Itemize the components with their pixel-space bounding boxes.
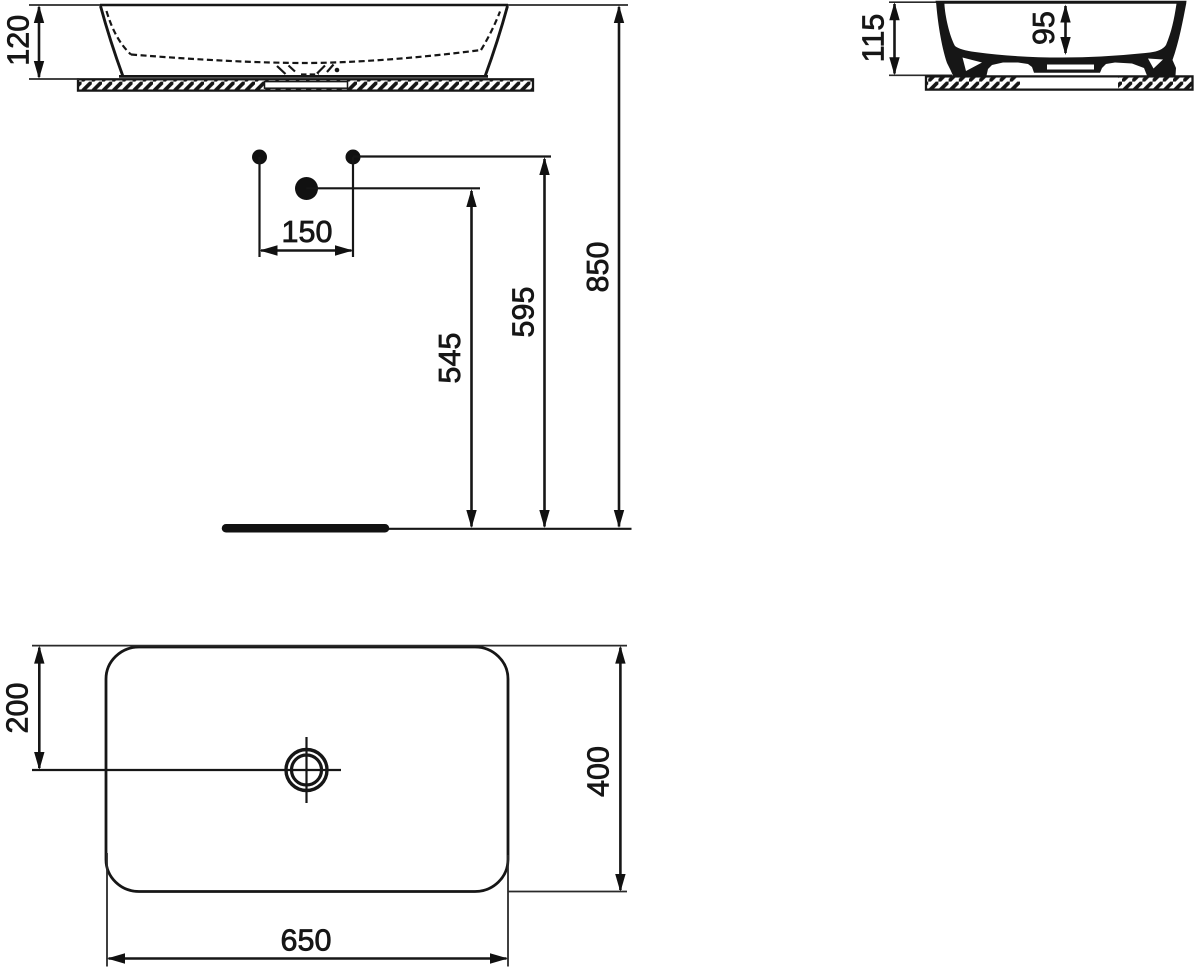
svg-text:150: 150 (282, 215, 333, 249)
svg-text:400: 400 (581, 746, 615, 797)
svg-text:120: 120 (1, 15, 35, 66)
svg-text:115: 115 (856, 14, 890, 63)
svg-text:95: 95 (1027, 11, 1061, 45)
svg-text:545: 545 (433, 333, 467, 384)
svg-text:200: 200 (0, 683, 34, 734)
svg-text:595: 595 (506, 287, 540, 338)
svg-text:850: 850 (581, 242, 615, 293)
svg-text:650: 650 (281, 924, 332, 958)
